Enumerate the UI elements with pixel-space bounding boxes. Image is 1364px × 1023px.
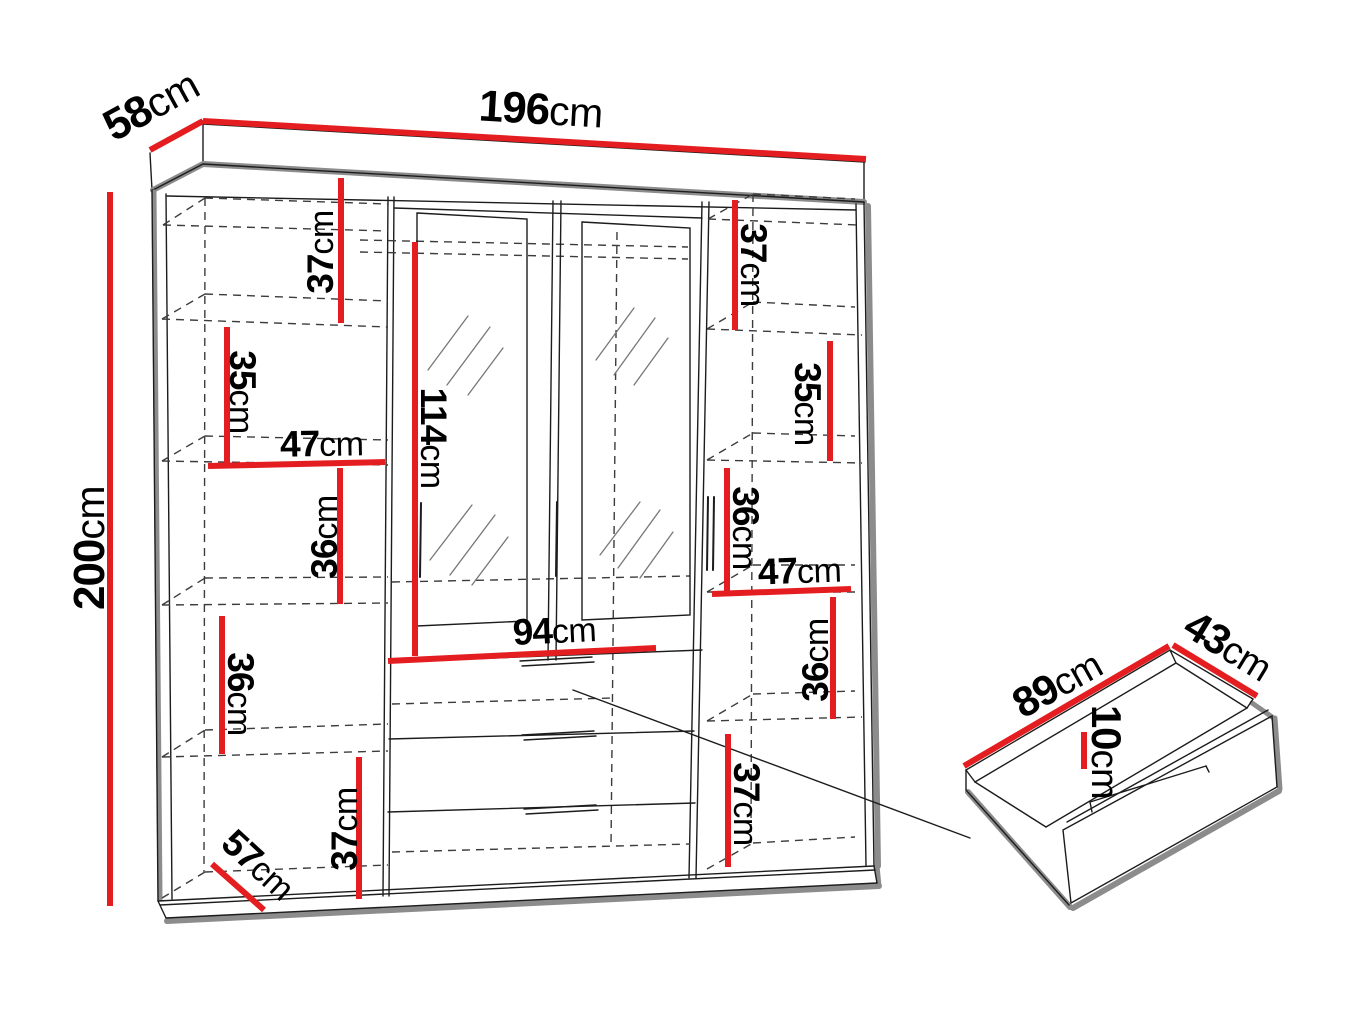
dim-label-right-37: 37cm [733, 223, 774, 306]
dim-label-left-47: 47cm [280, 422, 364, 464]
dim-label-width-196: 196cm [477, 81, 604, 137]
drawer-groove-1 [520, 657, 594, 666]
dim-label-left-37: 37cm [300, 210, 341, 293]
drawer-stack [388, 650, 702, 814]
dim-label-mirror-114: 114cm [413, 387, 454, 488]
partition-right [689, 202, 709, 878]
door-handle-center [556, 502, 557, 576]
dim-label-left-35: 35cm [222, 350, 263, 433]
wardrobe-dimensions-figure: 196cm 58cm 200cm 37cm 35cm 47cm 36cm 36c… [0, 0, 1364, 1023]
mirror-hatch-right [596, 308, 673, 578]
door-handle-right [707, 497, 714, 570]
dim-label-right-47: 47cm [757, 549, 842, 593]
dim-label-left-37b: 37cm [324, 787, 365, 870]
dimension-labels: 196cm 58cm 200cm 37cm 35cm 47cm 36cm 36c… [65, 60, 1281, 909]
dim-label-right-37b: 37cm [726, 762, 767, 845]
dim-label-center-94: 94cm [512, 608, 597, 653]
dim-label-right-36b: 36cm [795, 618, 836, 701]
mirror-door-right [556, 222, 714, 620]
dim-label-height-200: 200cm [65, 486, 114, 610]
dim-label-drawer-10: 10cm [1083, 705, 1130, 799]
drawer-pointer-line [573, 690, 970, 838]
partition-left [383, 197, 394, 896]
mirror-glass-right [582, 222, 690, 620]
center-compartment-hidden [360, 232, 690, 852]
dim-label-left-36b: 36cm [220, 652, 261, 735]
dim-label-left-36a: 36cm [304, 495, 345, 578]
dim-label-depth-58: 58cm [95, 60, 207, 151]
dim-label-right-35: 35cm [787, 362, 828, 445]
wardrobe-top-panel [150, 121, 865, 203]
diagram-canvas: 196cm 58cm 200cm 37cm 35cm 47cm 36cm 36c… [0, 0, 1364, 1023]
